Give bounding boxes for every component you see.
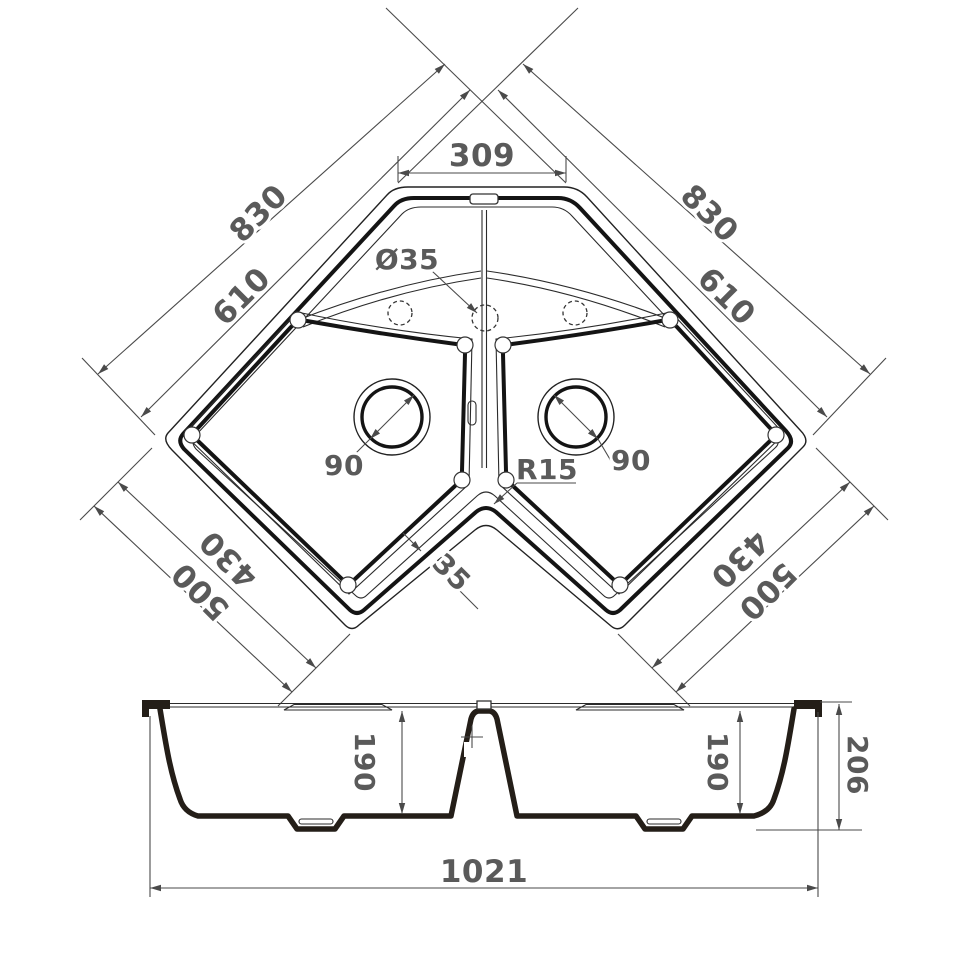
dim-left-inner-edge: 610 [206,261,278,333]
bowl-profile [160,709,794,829]
rim-cap-left [142,700,170,717]
dim-divider-wall: 35 [426,547,478,599]
dim-overall-height: 206 [841,735,874,795]
dim-corner-radius: R15 [516,453,578,486]
drawing-canvas: 309 830 610 830 610 430 500 430 500 90 9… [0,0,960,960]
sink-technical-drawing: 309 830 610 830 610 430 500 430 500 90 9… [0,0,960,960]
overflow-slot [470,194,498,204]
dim-faucet-hole: Ø35 [375,243,439,276]
dim-right-outer-edge: 830 [673,178,745,250]
sink-outline-outer [166,187,806,629]
dim-top-width: 309 [449,138,515,174]
faucet-hole-left-dashed [388,301,412,325]
section-view: 190 190 206 1021 [142,700,874,897]
dim-overall-width: 1021 [440,854,528,890]
dim-left-outer-edge: 830 [223,178,295,250]
dim-right-drain: 90 [611,444,651,477]
plan-view: 309 830 610 830 610 430 500 430 500 90 9… [80,8,888,706]
faucet-hole-right-dashed [563,301,587,325]
faucet-hole-center-dashed [472,305,498,331]
dim-left-depth: 190 [348,732,381,792]
divider-top-notch [477,701,491,709]
dim-left-drain: 90 [324,449,364,482]
dim-right-depth: 190 [701,732,734,792]
